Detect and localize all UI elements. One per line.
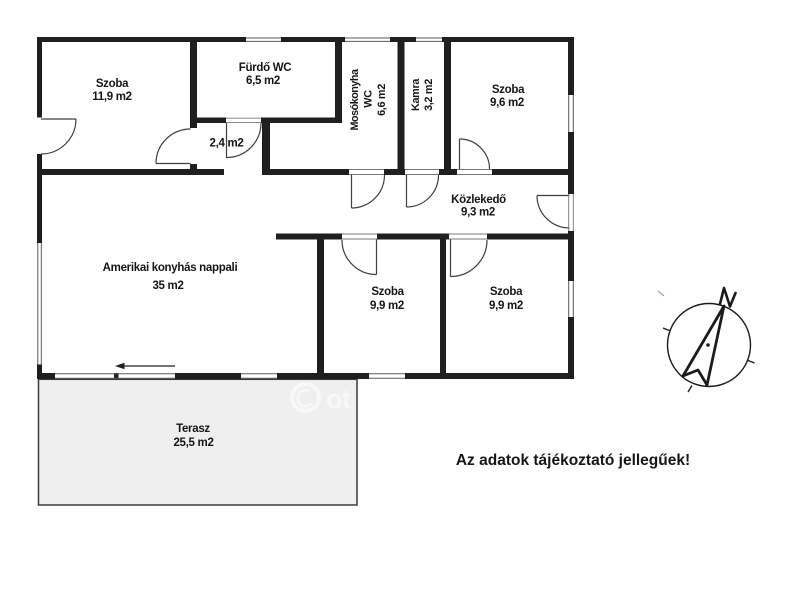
svg-text:11,9 m2: 11,9 m2: [92, 91, 131, 103]
svg-text:6,5 m2: 6,5 m2: [246, 75, 280, 87]
svg-text:Szoba: Szoba: [96, 78, 129, 90]
svg-text:35 m2: 35 m2: [152, 280, 183, 292]
svg-text:9,6 m2: 9,6 m2: [490, 97, 524, 109]
svg-text:Közlekedő: Közlekedő: [451, 194, 506, 206]
svg-text:Fürdő WC: Fürdő WC: [239, 62, 292, 74]
svg-text:Szoba: Szoba: [492, 84, 525, 96]
svg-text:Terasz: Terasz: [176, 423, 210, 435]
svg-text:Kamra: Kamra: [410, 78, 422, 111]
svg-text:Amerikai konyhás nappali: Amerikai konyhás nappali: [103, 262, 238, 274]
svg-text:25,5 m2: 25,5 m2: [173, 437, 213, 449]
svg-text:WC: WC: [363, 90, 375, 108]
svg-text:Mosókonyha: Mosókonyha: [349, 68, 361, 130]
svg-text:Szoba: Szoba: [371, 286, 404, 298]
svg-text:9,9 m2: 9,9 m2: [489, 300, 523, 312]
svg-text:3,2 m2: 3,2 m2: [423, 79, 435, 111]
svg-text:6,6 m2: 6,6 m2: [376, 84, 388, 116]
svg-text:9,3 m2: 9,3 m2: [461, 207, 495, 219]
svg-text:ot: ot: [326, 384, 351, 414]
svg-text:2,4 m2: 2,4 m2: [209, 138, 243, 150]
svg-text:9,9 m2: 9,9 m2: [370, 300, 404, 312]
svg-text:Az adatok tájékoztató jellegűe: Az adatok tájékoztató jellegűek!: [456, 452, 690, 469]
svg-text:Szoba: Szoba: [490, 286, 523, 298]
